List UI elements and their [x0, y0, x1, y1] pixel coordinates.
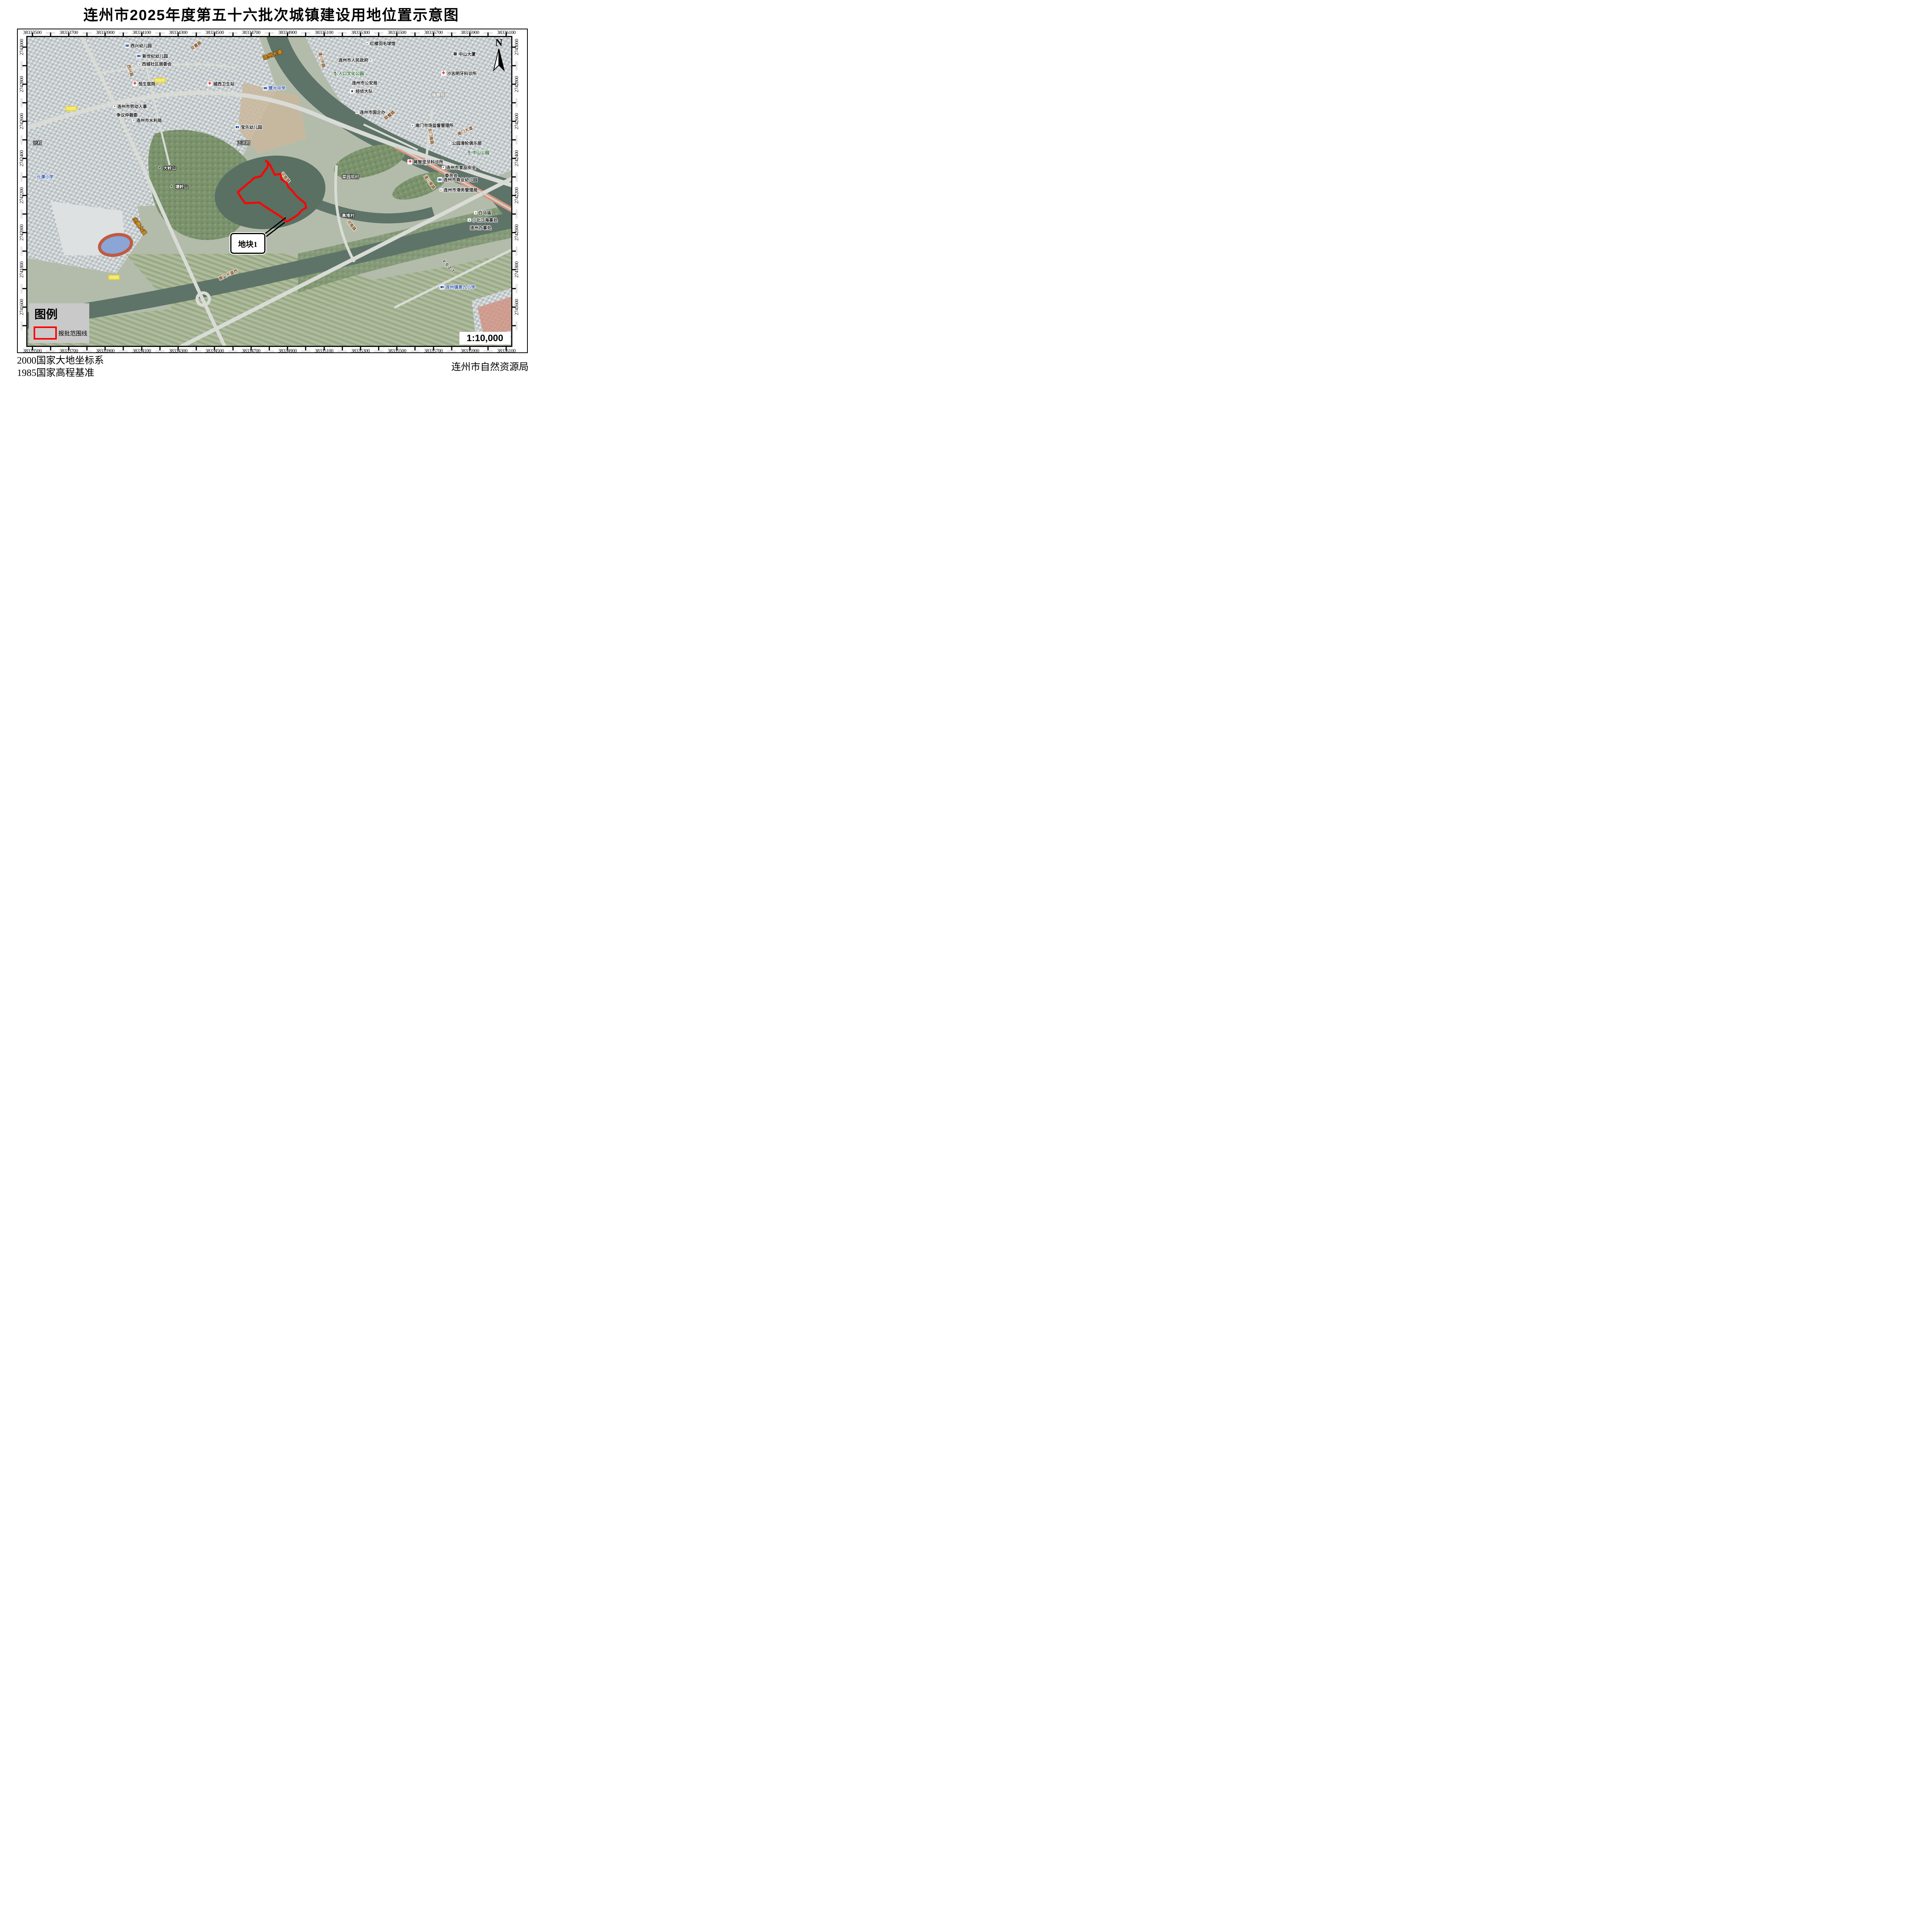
map-label-text: 经侦大队	[355, 89, 372, 94]
map-label-highway: 龙腾大道	[132, 217, 147, 236]
map-label-poi: 连州市公安局	[352, 81, 378, 86]
map-label-text: 连州市水利局	[136, 118, 162, 123]
parcel-callout: 地块1	[230, 233, 265, 254]
map-label-poi: 白马庙	[474, 211, 491, 216]
map-label-text: 元潭小学	[37, 175, 54, 179]
map-label-poi: 公园滑轮俱乐部	[448, 141, 482, 146]
map-label-text: 龙腾大道	[132, 216, 148, 236]
map-label-village: 菜园坝村	[342, 175, 359, 180]
north-arrow: N	[490, 38, 507, 74]
map-label-road: 河南路	[279, 172, 291, 184]
north-label: N	[490, 38, 507, 48]
issuing-authority: 连州市自然资源局	[451, 359, 529, 373]
map-label-poi: 西兴幼儿园	[125, 43, 152, 49]
map-label-road: 双喜路	[190, 41, 202, 52]
map-label-text: 白马庙	[478, 211, 491, 216]
map-label-poi: 小北江海事处	[468, 218, 498, 223]
map-label-text: 河南路	[346, 219, 357, 232]
book-icon	[438, 177, 442, 182]
parcel-label: 地块1	[238, 238, 257, 249]
dot-icon	[369, 58, 372, 61]
boundary-line-swatch	[34, 326, 57, 340]
dot-icon	[366, 42, 369, 45]
map-label-text: 慧光中学	[269, 86, 286, 91]
map-label-village: 正河村	[237, 141, 250, 146]
book-icon	[125, 43, 129, 48]
map-label-text: 公园滑轮俱乐部	[452, 141, 482, 146]
map-label-road: 湟川南路	[423, 174, 436, 190]
dot-icon	[439, 189, 442, 192]
coordinate-system-note: 2000国家大地坐标系 1985国家高程基准	[17, 355, 104, 379]
book-icon	[440, 285, 444, 289]
cross-icon	[133, 82, 137, 86]
map-label-poi: 红楼羽毛球馆	[366, 42, 395, 47]
map-label-text: 人口文化公园	[338, 71, 364, 76]
map-label-text: 连州市商业幼儿园	[444, 178, 478, 182]
map-label-text: 蒋智坚牙科诊所	[413, 160, 443, 165]
map-label-text: 南门大道	[457, 126, 473, 137]
dot-icon	[138, 63, 141, 66]
book-icon	[235, 125, 240, 129]
map-label-poi: 沙志明牙科诊所	[441, 71, 477, 76]
map-label-poi: 蒋智坚牙科诊所	[408, 160, 443, 165]
map-labels-layer: 西兴幼儿园新世纪幼儿园双喜路西城社区居委会西兴路恒生医院G323G323G323…	[27, 37, 511, 346]
tree-icon	[333, 71, 337, 76]
map-label-text: 连州市港务管理局	[444, 188, 478, 193]
map-label-text: 湟川中路	[317, 51, 326, 68]
map-label-poi: 连州市食品安全	[442, 165, 476, 170]
map-label-text: 高堆村	[342, 214, 355, 218]
cross-icon	[207, 82, 212, 86]
book-icon	[263, 86, 267, 90]
map-label-text: 菜园坝村	[342, 175, 359, 179]
map-label-text: 新世纪幼儿园	[143, 54, 168, 59]
map-label-school: 慧光中学	[263, 86, 286, 91]
map-label-text: 中山大厦	[459, 52, 476, 57]
book-icon	[137, 54, 141, 58]
map-label-text: 西兴路	[126, 64, 134, 77]
satellite-map-area: 西兴幼儿园新世纪幼儿园双喜路西城社区居委会西兴路恒生医院G323G323G323…	[26, 36, 512, 347]
north-arrow-icon	[492, 48, 506, 72]
map-label-text: 连州市食品安全	[446, 165, 476, 170]
legend-item-label: 报批范围线	[58, 329, 87, 337]
map-label-village: 塘岭山	[170, 184, 188, 190]
map-label-poi: 连州市人民政府	[338, 58, 372, 63]
map-label-text: 湟川南路	[423, 174, 436, 190]
map-label-poi: 中山大厦	[453, 52, 476, 57]
legend-item: 报批范围线	[34, 326, 87, 340]
map-label-text: 连州大道	[262, 49, 283, 61]
map-label-road: 湟川中路	[317, 51, 326, 68]
map-label-poi: 新世纪幼儿园	[137, 54, 168, 59]
dot-icon	[448, 141, 451, 144]
map-label-poi: 西城社区居委会	[138, 62, 172, 67]
dot-icon	[132, 119, 135, 122]
dot-icon	[474, 211, 477, 214]
map-label-text: 连州镇第九小学	[446, 285, 475, 290]
map-label-text: 恒生医院	[138, 82, 155, 87]
legend: 图例 报批范围线	[29, 303, 89, 343]
map-label-badge: G323	[154, 78, 166, 83]
map-label-text: 西兴幼儿园	[131, 44, 152, 48]
map-label-poi: 宝乐幼儿园	[235, 125, 262, 130]
map-label-text: 争议仲裁委	[116, 113, 138, 117]
map-label-area: 建康苑	[432, 93, 444, 98]
map-label-text: 河南路	[280, 172, 291, 184]
map-label-poi: 连州市港务管理局	[439, 188, 478, 193]
cross-icon	[408, 160, 412, 164]
map-label-highway: 连州大道	[262, 49, 283, 61]
map-label-park: 人口文化公园	[333, 71, 364, 76]
map-label-text: 中山公园	[472, 151, 489, 155]
map-label-poi: 恒生医院	[133, 82, 155, 87]
map-label-text: 东门南路	[427, 128, 434, 144]
map-label-school: 连州镇第九小学	[440, 285, 475, 290]
map-label-text: 塘岭山	[175, 185, 188, 189]
map-label-poi: 经侦大队	[350, 89, 372, 94]
page-title: 连州市2025年度第五十六批次城镇建设用地位置示意图	[0, 3, 543, 24]
legend-title: 图例	[34, 305, 89, 322]
map-label-poi: 连州办事处	[470, 226, 492, 231]
map-label-text: Y027	[441, 259, 456, 275]
bldg-icon	[453, 52, 457, 56]
map-label-road: 南门大道	[457, 126, 474, 137]
map-label-text: 宝乐幼儿园	[241, 125, 262, 130]
map-label-roadcode: Y027	[441, 259, 456, 275]
dot-icon	[355, 110, 359, 114]
map-label-road: 联璧路	[383, 110, 396, 121]
cross-icon	[441, 71, 446, 76]
map-label-road: 东门南路	[427, 128, 434, 145]
star-icon	[350, 89, 354, 93]
map-label-text: 连州市人民政府	[338, 58, 368, 63]
map-label-poi: 城西卫生站	[207, 82, 235, 87]
map-label-text: 小北江海事处	[472, 218, 498, 223]
map-label-badge: G323	[65, 106, 77, 111]
map-label-text: 大岭山	[163, 166, 176, 171]
map-label-text: 双喜路	[190, 41, 202, 51]
geodetic-datum: 2000国家大地坐标系	[17, 355, 104, 367]
map-label-poi: 南门市场监督管理所	[411, 124, 454, 129]
map-label-text: 元村	[33, 141, 42, 145]
map-label-text: G323	[67, 107, 75, 110]
map-label-text: 连州办事处	[470, 226, 492, 231]
map-label-village: 元村	[33, 141, 42, 146]
map-label-park: 中山公园	[467, 150, 489, 156]
mtn-icon	[158, 166, 162, 170]
map-label-text: 南门市场监督管理所	[415, 124, 454, 128]
map-label-text: 西城社区居委会	[142, 62, 172, 67]
mtn-icon	[170, 184, 174, 189]
map-label-poi: 连州市商业幼儿园	[438, 177, 478, 183]
height-datum: 1985国家高程基准	[17, 367, 104, 379]
map-label-poi: 连州市劳动人事	[113, 104, 147, 109]
map-label-text: G323	[156, 78, 164, 82]
map-label-school: 元潭小学	[37, 175, 54, 180]
map-label-poi: 争议仲裁委	[116, 113, 138, 118]
scale-indicator: 1:10,000	[459, 332, 510, 345]
map-label-text: 正河村	[237, 141, 250, 145]
map-label-badge: G323	[108, 275, 120, 280]
map-label-text: 南门大道西	[218, 269, 238, 281]
map-label-text: 连州市国企办	[360, 110, 385, 115]
map-label-text: 连州市劳动人事	[117, 104, 147, 109]
map-label-poi: 连州市国企办	[355, 110, 385, 115]
map-label-village: 高堆村	[342, 214, 355, 219]
dot-icon	[113, 105, 116, 108]
map-label-village: 大岭山	[158, 166, 176, 171]
dot-icon	[442, 166, 445, 169]
map-label-text: 红楼羽毛球馆	[370, 42, 395, 46]
tree-icon	[467, 150, 471, 155]
map-label-text: 连州市公安局	[352, 81, 378, 85]
map-label-text: G323	[110, 275, 118, 279]
dot-icon	[411, 124, 414, 127]
map-label-text: 城西卫生站	[213, 82, 235, 87]
map-label-road: 西兴路	[126, 64, 134, 77]
dot-icon	[468, 219, 471, 222]
map-label-road: 南门大道西	[218, 269, 238, 282]
map-label-text: 沙志明牙科诊所	[447, 71, 477, 76]
map-label-road: 河南路	[345, 219, 357, 232]
map-label-poi: 连州市水利局	[132, 118, 162, 123]
map-label-text: 建康苑	[432, 93, 444, 98]
